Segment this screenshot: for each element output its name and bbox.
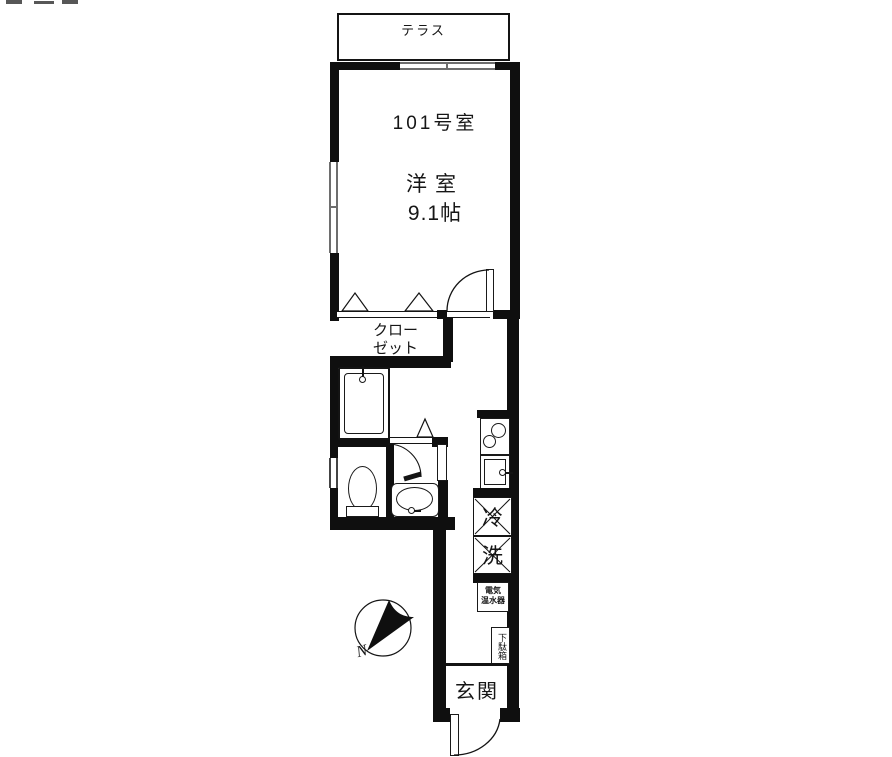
floor-plan: テラス 101号室 洋室 9.1帖 クロー ゼット xyxy=(0,0,892,757)
toilet-bowl xyxy=(348,466,377,511)
wall xyxy=(433,708,450,722)
toilet-tank xyxy=(346,506,379,517)
compass-north-label: N xyxy=(348,640,376,664)
washroom-door-panel xyxy=(437,444,447,481)
scan-artifact xyxy=(62,0,78,4)
washroom-door-track xyxy=(390,437,432,444)
washroom-door-mark xyxy=(417,419,433,437)
door-leaf-entrance xyxy=(450,714,459,756)
washbasin-faucet-stub xyxy=(414,510,421,512)
wall xyxy=(330,62,339,162)
toilet-window xyxy=(329,458,338,488)
room-number-label: 101号室 xyxy=(345,108,525,135)
wall xyxy=(438,480,448,520)
wall xyxy=(473,488,517,497)
window-mullion xyxy=(329,206,338,208)
compass-needle xyxy=(367,600,414,651)
sink-faucet-stub xyxy=(505,472,513,474)
wall xyxy=(500,708,520,722)
closet-folding-door-mark xyxy=(405,293,433,311)
terrace-label: テラス xyxy=(337,20,510,39)
shoebox-label: 下駄箱 xyxy=(495,629,507,663)
closet-label-line2: ゼット xyxy=(348,337,443,358)
wall xyxy=(330,62,402,70)
fridge-label: 冷 xyxy=(473,497,512,536)
window-mullion xyxy=(446,62,448,70)
room-type-label: 洋室 xyxy=(345,168,525,198)
door-swing-arc-entrance xyxy=(454,719,500,755)
door-swing-arc-main-room xyxy=(447,270,489,311)
water-heater-label-line1: 電気 xyxy=(477,586,509,595)
entrance-step-line xyxy=(446,663,507,666)
wall xyxy=(477,410,517,418)
scan-artifact xyxy=(34,1,54,4)
door-leaf-main-room xyxy=(486,269,494,312)
room-size-label: 9.1帖 xyxy=(345,197,525,227)
door-leaf-washroom xyxy=(404,474,421,479)
wall xyxy=(433,517,446,722)
entrance-label: 玄関 xyxy=(446,675,508,704)
water-heater-label-line2: 温水器 xyxy=(477,596,509,605)
bath-faucet-knob xyxy=(359,376,366,383)
closet-door-track xyxy=(337,311,490,318)
scan-artifact xyxy=(6,0,22,4)
closet-folding-door-mark xyxy=(342,293,368,311)
stove-burner xyxy=(483,435,496,448)
washer-label: 洗 xyxy=(473,536,512,574)
washbasin-bowl xyxy=(396,487,433,511)
